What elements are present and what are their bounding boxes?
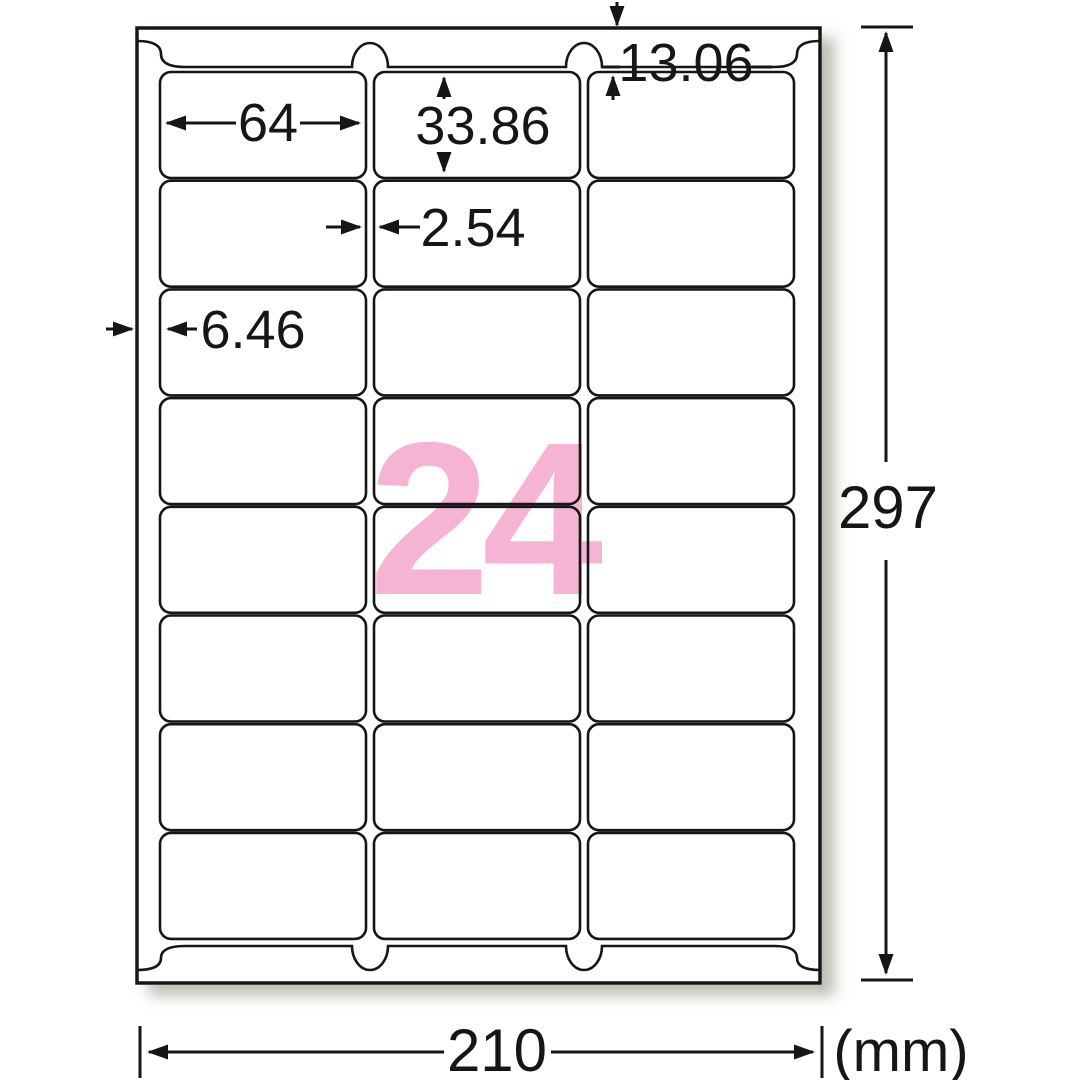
diagram-stage: 24 13.06 64 33.86 2.54 6.46: [0, 0, 1080, 1080]
dim-sheet-width: 210: [140, 1017, 822, 1080]
label-height-value: 33.86: [415, 96, 550, 156]
label-count: 24: [369, 398, 603, 641]
label-sheet-diagram: 24 13.06 64 33.86 2.54 6.46: [0, 0, 1080, 1080]
sheet-width-value: 210: [447, 1017, 547, 1080]
column-gap-value: 2.54: [420, 198, 525, 258]
top-margin-value: 13.06: [618, 33, 753, 93]
unit-label: (mm): [833, 1019, 968, 1080]
dim-sheet-height: 297: [838, 27, 938, 980]
dim-top-margin: 13.06: [602, 2, 772, 100]
side-margin-value: 6.46: [200, 300, 305, 360]
sheet-height-value: 297: [838, 474, 938, 541]
label-width-value: 64: [238, 93, 298, 153]
